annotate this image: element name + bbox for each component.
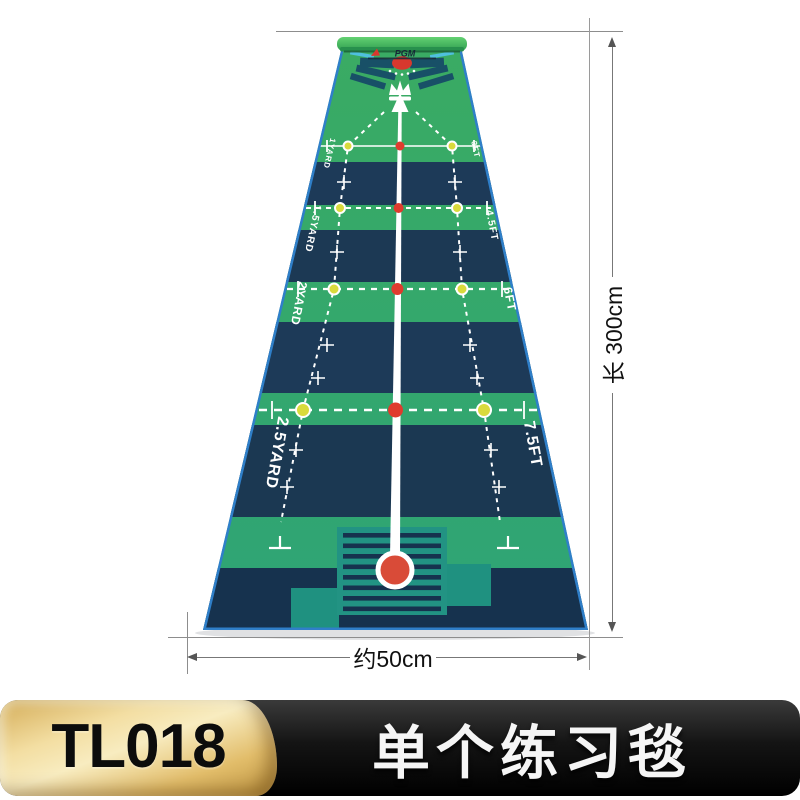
bottom-extension-line <box>168 637 623 638</box>
length-dimension-line <box>612 46 613 277</box>
right-guide-line <box>589 18 590 670</box>
left-extension-line <box>187 612 188 674</box>
top-extension-line <box>276 31 623 32</box>
width-dimension-line <box>436 657 577 658</box>
length-dimension-line <box>612 393 613 622</box>
teal-square <box>291 588 339 630</box>
putting-mat-graphic: PGM 1YARD 3FT 1.5YARD 4.5FT 2YARD 6FT 2.… <box>0 0 800 800</box>
length-label: 长 300cm <box>595 286 629 384</box>
width-dimension-line <box>197 657 350 658</box>
title-banner: TL018 单个练习毯 <box>0 700 800 796</box>
teal-square <box>447 564 491 606</box>
model-badge: TL018 <box>0 700 277 796</box>
right-arrow-icon <box>577 653 587 661</box>
model-code-text: TL018 <box>51 711 225 782</box>
width-label: 约50cm <box>353 640 432 674</box>
down-arrow-icon <box>608 622 616 632</box>
mat-surface <box>150 42 650 630</box>
up-arrow-icon <box>608 37 616 47</box>
ball-start-marker <box>378 553 412 587</box>
brand-logo-text: PGM <box>395 49 416 59</box>
product-title: 单个练习毯 <box>277 700 787 796</box>
product-image: PGM 1YARD 3FT 1.5YARD 4.5FT 2YARD 6FT 2.… <box>0 0 800 800</box>
left-arrow-icon <box>187 653 197 661</box>
